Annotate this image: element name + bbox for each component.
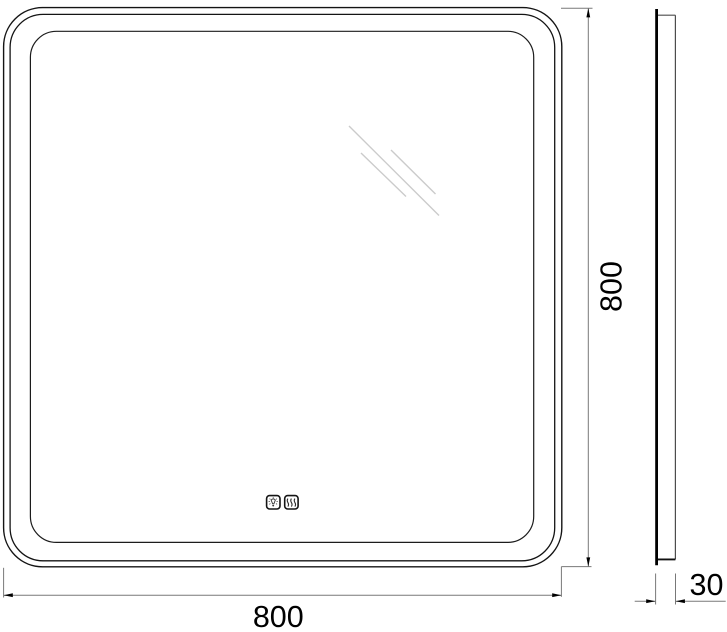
svg-text:800: 800 — [595, 261, 629, 312]
svg-text:800: 800 — [253, 600, 304, 632]
svg-text:30: 30 — [690, 568, 724, 602]
